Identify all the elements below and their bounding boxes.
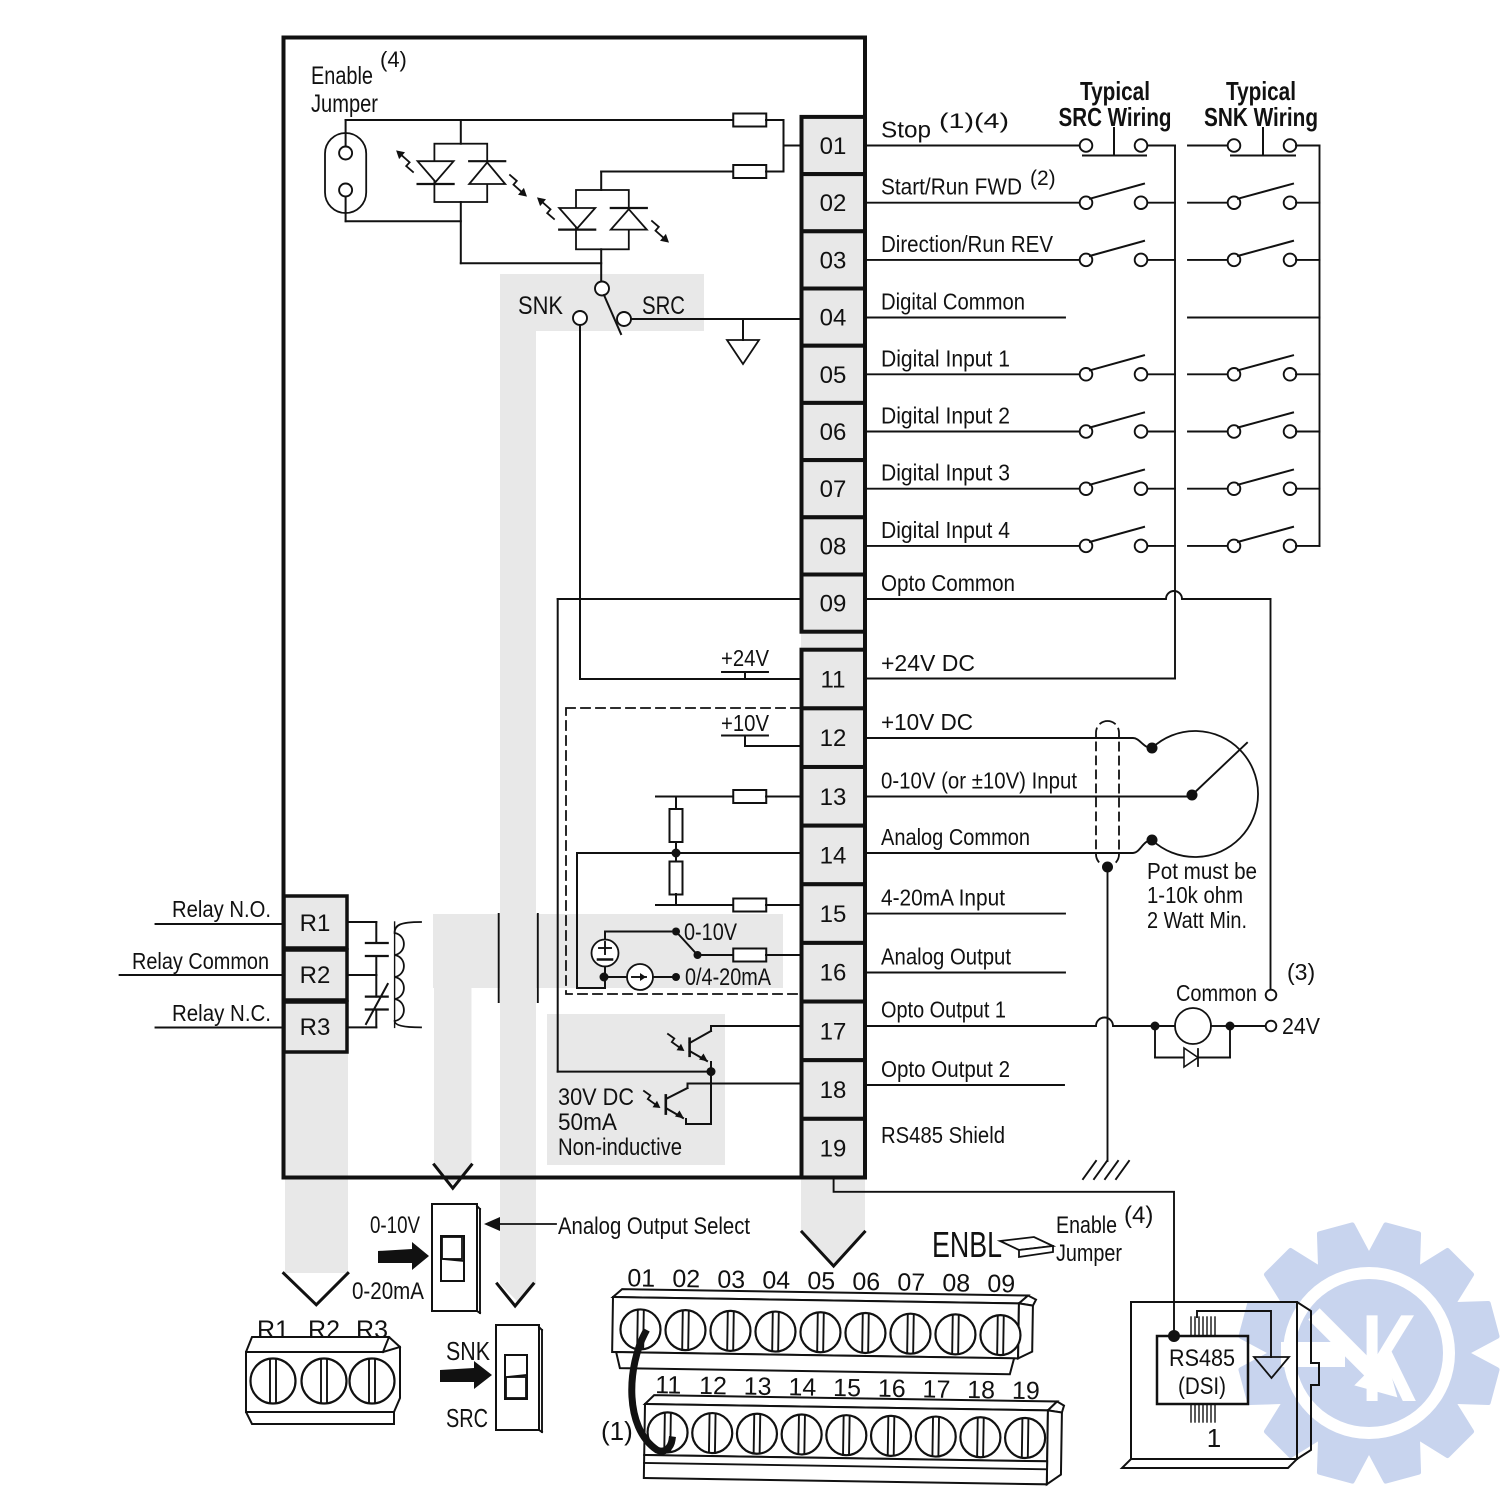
svg-text:Stop: Stop [881, 117, 931, 143]
svg-text:0-10V (or ±10V) Input: 0-10V (or ±10V) Input [881, 768, 1078, 794]
svg-text:SRC: SRC [446, 1403, 488, 1433]
svg-text:24V: 24V [1282, 1013, 1321, 1039]
svg-text:Jumper: Jumper [1056, 1240, 1122, 1267]
svg-text:Analog Output Select: Analog Output Select [558, 1213, 750, 1240]
svg-text:SNK: SNK [518, 292, 563, 320]
svg-text:Enable: Enable [1056, 1212, 1117, 1239]
svg-text:(1): (1) [601, 1416, 633, 1446]
svg-text:Digital Input 2: Digital Input 2 [881, 403, 1010, 429]
svg-text:R2: R2 [300, 962, 331, 989]
svg-text:0/4-20mA: 0/4-20mA [685, 964, 771, 991]
svg-text:R3: R3 [300, 1014, 331, 1041]
svg-text:07: 07 [820, 476, 847, 503]
svg-text:08: 08 [942, 1269, 970, 1297]
svg-text:01: 01 [820, 133, 847, 160]
svg-text:Digital Common: Digital Common [881, 289, 1025, 315]
svg-text:Start/Run FWD: Start/Run FWD [881, 174, 1022, 200]
svg-text:16: 16 [878, 1375, 906, 1403]
svg-text:06: 06 [852, 1268, 880, 1296]
svg-text:03: 03 [717, 1266, 745, 1294]
svg-text:SRC: SRC [642, 292, 685, 320]
svg-text:4-20mA Input: 4-20mA Input [881, 885, 1006, 911]
svg-text:1: 1 [1207, 1423, 1221, 1453]
svg-text:19: 19 [820, 1136, 847, 1163]
svg-text:Analog Output: Analog Output [881, 944, 1012, 970]
svg-text:SNK: SNK [446, 1336, 491, 1366]
svg-text:14: 14 [788, 1373, 816, 1401]
svg-text:05: 05 [807, 1267, 835, 1295]
svg-text:11: 11 [655, 1371, 681, 1399]
svg-text:(4): (4) [1124, 1202, 1153, 1229]
svg-text:19: 19 [1012, 1377, 1040, 1405]
svg-text:+24V DC: +24V DC [881, 650, 975, 676]
svg-text:Digital Input 1: Digital Input 1 [881, 345, 1010, 371]
svg-text:17: 17 [820, 1018, 847, 1045]
svg-text:09: 09 [987, 1270, 1015, 1298]
svg-text:Analog Common: Analog Common [881, 824, 1030, 850]
svg-text:50mA: 50mA [558, 1109, 617, 1136]
svg-text:Direction/Run REV: Direction/Run REV [881, 231, 1054, 257]
svg-text:Opto Output 2: Opto Output 2 [881, 1056, 1010, 1082]
svg-text:15: 15 [833, 1374, 861, 1402]
svg-text:RS485 Shield: RS485 Shield [881, 1122, 1005, 1148]
svg-text:(2): (2) [1030, 167, 1056, 190]
svg-text:(4): (4) [380, 47, 407, 72]
svg-text:18: 18 [820, 1077, 847, 1104]
svg-text:R1: R1 [300, 910, 331, 937]
svg-text:Opto Output 1: Opto Output 1 [881, 997, 1006, 1023]
svg-text:Common: Common [1176, 980, 1257, 1006]
svg-text:05: 05 [820, 362, 847, 389]
svg-text:Digital Input 4: Digital Input 4 [881, 517, 1010, 543]
svg-text:RS485: RS485 [1169, 1345, 1235, 1372]
svg-text:2 Watt Min.: 2 Watt Min. [1147, 907, 1247, 933]
svg-text:01: 01 [627, 1264, 655, 1292]
svg-text:+24V: +24V [721, 645, 770, 671]
svg-text:11: 11 [821, 667, 846, 694]
svg-text:12: 12 [820, 725, 847, 752]
svg-text:Jumper: Jumper [311, 90, 378, 118]
svg-text:14: 14 [820, 842, 847, 869]
svg-text:15: 15 [820, 901, 847, 928]
svg-text:+10V DC: +10V DC [881, 709, 973, 735]
svg-text:02: 02 [672, 1265, 700, 1293]
svg-text:06: 06 [820, 419, 847, 446]
svg-text:07: 07 [897, 1268, 925, 1296]
svg-text:ENBL: ENBL [932, 1224, 1002, 1265]
svg-text:04: 04 [762, 1266, 790, 1294]
svg-text:13: 13 [744, 1373, 772, 1401]
svg-text:Non-inductive: Non-inductive [558, 1134, 682, 1161]
svg-text:SNK Wiring: SNK Wiring [1204, 102, 1318, 132]
svg-text:Opto Common: Opto Common [881, 570, 1015, 596]
svg-text:13: 13 [820, 784, 847, 811]
svg-text:Relay N.O.: Relay N.O. [172, 896, 271, 922]
svg-text:0-20mA: 0-20mA [352, 1278, 424, 1305]
svg-text:0-10V: 0-10V [370, 1212, 420, 1239]
svg-text:Relay N.C.: Relay N.C. [172, 1000, 271, 1026]
svg-text:Relay Common: Relay Common [132, 948, 269, 974]
svg-text:+10V: +10V [721, 710, 770, 736]
svg-text:Enable: Enable [311, 62, 373, 90]
svg-text:0-10V: 0-10V [684, 919, 737, 946]
svg-text:(1)(4): (1)(4) [939, 110, 1009, 133]
svg-text:(DSI): (DSI) [1178, 1373, 1226, 1400]
svg-text:02: 02 [820, 190, 847, 217]
svg-text:08: 08 [820, 533, 847, 560]
svg-text:17: 17 [922, 1375, 950, 1403]
svg-text:1-10k ohm: 1-10k ohm [1147, 882, 1243, 908]
svg-text:16: 16 [820, 960, 847, 987]
svg-text:09: 09 [820, 591, 847, 618]
svg-text:12: 12 [699, 1372, 727, 1400]
svg-text:Pot must be: Pot must be [1147, 858, 1257, 884]
svg-text:03: 03 [820, 247, 847, 274]
svg-text:30V DC: 30V DC [558, 1084, 634, 1111]
svg-text:Digital Input 3: Digital Input 3 [881, 460, 1010, 486]
svg-text:(3): (3) [1287, 959, 1315, 985]
svg-text:18: 18 [967, 1376, 995, 1404]
svg-text:04: 04 [820, 305, 847, 332]
